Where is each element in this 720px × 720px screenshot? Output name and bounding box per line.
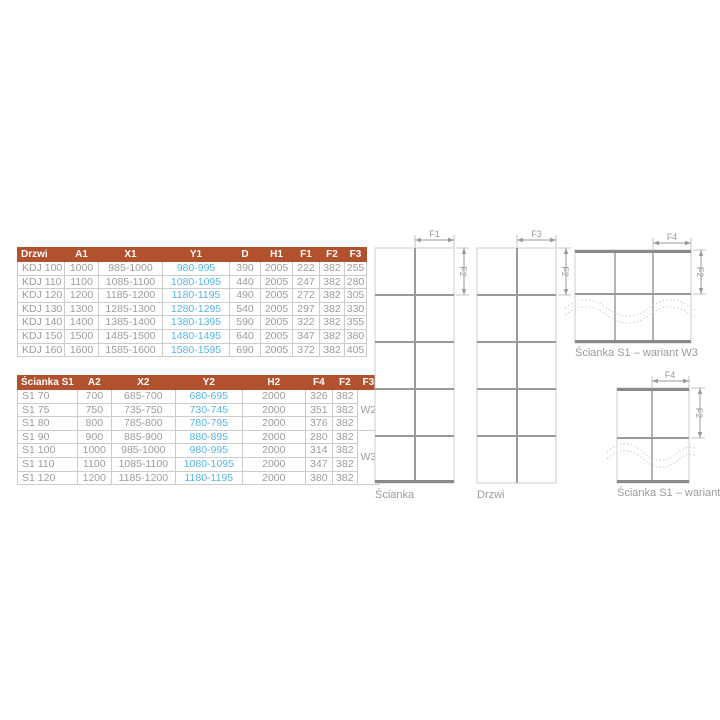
table-cell: 750 — [77, 403, 111, 417]
table-cell: 1485-1500 — [99, 329, 163, 343]
table-cell: 351 — [305, 403, 332, 417]
table-cell: 382 — [320, 329, 345, 343]
table-cell: S1 70 — [18, 390, 78, 404]
table-cell: KDJ 120 — [18, 289, 65, 303]
w2-variant-diagram: F4 F2 — [610, 368, 720, 490]
col-header-f3: F3 — [345, 248, 367, 262]
table-cell: 2005 — [261, 289, 293, 303]
table-cell: 1085-1100 — [111, 457, 175, 471]
table-cell: 2005 — [261, 275, 293, 289]
dim-label-f2: F2 — [458, 266, 468, 277]
table-cell: 322 — [293, 316, 320, 330]
scianka-table-body: S1 70700685-700680-6952000326382W2S1 757… — [18, 390, 380, 485]
drzwi-header-row: DrzwiA1X1Y1DH1F1F2F3 — [18, 248, 367, 262]
table-cell: 382 — [332, 457, 357, 471]
col-header-y2: Y2 — [175, 376, 242, 390]
table-cell: 382 — [320, 302, 345, 316]
table-row: KDJ 15015001485-15001480-149564020053473… — [18, 329, 367, 343]
table-cell: 1385-1400 — [99, 316, 163, 330]
col-header-a2: A2 — [77, 376, 111, 390]
table-cell: 985-1000 — [99, 262, 163, 276]
table-cell: KDJ 150 — [18, 329, 65, 343]
table-cell: 2000 — [242, 430, 305, 444]
table-row: KDJ 13013001285-13001280-129554020052973… — [18, 302, 367, 316]
table-cell: 590 — [230, 316, 261, 330]
table-row: KDJ 11011001085-11001080-109544020052473… — [18, 275, 367, 289]
table-cell: 297 — [293, 302, 320, 316]
drzwi-table: DrzwiA1X1Y1DH1F1F2F3 KDJ 1001000985-1000… — [17, 247, 367, 357]
table-cell: 2000 — [242, 403, 305, 417]
col-header-x1: X1 — [99, 248, 163, 262]
table-cell: 2000 — [242, 471, 305, 485]
table-cell: 1380-1395 — [163, 316, 230, 330]
table-cell: 2000 — [242, 444, 305, 458]
table-cell: 490 — [230, 289, 261, 303]
dimension-top: F3 — [517, 229, 556, 248]
table-cell: 680-695 — [175, 390, 242, 404]
table-row: S1 75750735-750730-7452000351382 — [18, 403, 380, 417]
table-cell: 280 — [305, 430, 332, 444]
col-header-f4: F4 — [305, 376, 332, 390]
table-cell: 382 — [332, 430, 357, 444]
table-cell: 1180-1195 — [163, 289, 230, 303]
table-cell: 382 — [332, 390, 357, 404]
table-row: S1 1001000985-1000980-9952000314382 — [18, 444, 380, 458]
table-cell: 540 — [230, 302, 261, 316]
table-cell: 1585-1600 — [99, 343, 163, 357]
dimension-top: F1 — [415, 229, 454, 248]
table-cell: 440 — [230, 275, 261, 289]
dim-label-f1: F1 — [429, 229, 440, 239]
table-cell: 785-800 — [111, 417, 175, 431]
table-cell: 380 — [305, 471, 332, 485]
dim-label-f2: F2 — [694, 408, 704, 419]
table-cell: 985-1000 — [111, 444, 175, 458]
drzwi-diagram-caption: Drzwi — [477, 489, 505, 501]
table-cell: 382 — [320, 343, 345, 357]
table-cell: 405 — [345, 343, 367, 357]
w3-diagram-caption: Ścianka S1 – wariant W3 — [575, 347, 698, 359]
dimension-top: F4 — [652, 370, 689, 388]
table-cell: 1580-1595 — [163, 343, 230, 357]
table-cell: 382 — [332, 444, 357, 458]
table-cell: 390 — [230, 262, 261, 276]
table-row: KDJ 12012001185-12001180-119549020052723… — [18, 289, 367, 303]
table-cell: 272 — [293, 289, 320, 303]
table-cell: 355 — [345, 316, 367, 330]
table-cell: S1 120 — [18, 471, 78, 485]
dimension-side: F2 — [691, 388, 705, 438]
table-cell: 880-895 — [175, 430, 242, 444]
table-cell: KDJ 100 — [18, 262, 65, 276]
table-cell: 1285-1300 — [99, 302, 163, 316]
col-header-x2: X2 — [111, 376, 175, 390]
table-cell: KDJ 110 — [18, 275, 65, 289]
table-cell: 1200 — [65, 289, 99, 303]
table-row: S1 70700685-700680-6952000326382W2 — [18, 390, 380, 404]
col-header-a1: A1 — [65, 248, 99, 262]
table-cell: 1400 — [65, 316, 99, 330]
table-cell: 980-995 — [163, 262, 230, 276]
col-header-f2: F2 — [332, 376, 357, 390]
table-cell: 2005 — [261, 302, 293, 316]
table-cell: 800 — [77, 417, 111, 431]
table-row: KDJ 1001000985-1000980-99539020052223822… — [18, 262, 367, 276]
table-cell: KDJ 160 — [18, 343, 65, 357]
table-cell: 1080-1095 — [175, 457, 242, 471]
table-cell: 382 — [320, 316, 345, 330]
table-cell: 382 — [320, 262, 345, 276]
table-cell: 1100 — [65, 275, 99, 289]
table-cell: 2005 — [261, 262, 293, 276]
dim-label-f3: F3 — [531, 229, 542, 239]
table-cell: 2005 — [261, 316, 293, 330]
table-cell: 305 — [345, 289, 367, 303]
w2-diagram-caption: Ścianka S1 – wariant W2 — [617, 487, 720, 499]
table-cell: 1000 — [65, 262, 99, 276]
table-cell: 2000 — [242, 417, 305, 431]
dimension-side: F2 — [693, 250, 706, 294]
table-row: S1 11011001085-11001080-10952000347382 — [18, 457, 380, 471]
table-cell: 247 — [293, 275, 320, 289]
table-cell: 780-795 — [175, 417, 242, 431]
table-cell: 347 — [305, 457, 332, 471]
table-cell: 2000 — [242, 390, 305, 404]
table-cell: S1 90 — [18, 430, 78, 444]
table-row: KDJ 14014001385-14001380-139559020053223… — [18, 316, 367, 330]
w3-variant-diagram: F4 F2 — [568, 232, 714, 350]
col-header-h2: H2 — [242, 376, 305, 390]
table-cell: 330 — [345, 302, 367, 316]
col-header-d: D — [230, 248, 261, 262]
table-cell: 1480-1495 — [163, 329, 230, 343]
drzwi-panel-diagram: F3 F2 — [472, 229, 574, 487]
dim-label-f2: F2 — [695, 267, 705, 278]
table-cell: 376 — [305, 417, 332, 431]
table-cell: S1 75 — [18, 403, 78, 417]
col-header-drzwi: Drzwi — [18, 248, 65, 262]
dim-label-f4: F4 — [665, 370, 676, 380]
dimension-side: F2 — [456, 248, 469, 295]
table-cell: 700 — [77, 390, 111, 404]
table-cell: 980-995 — [175, 444, 242, 458]
table-row: S1 90900885-900880-8952000280382W3 — [18, 430, 380, 444]
table-cell: 2005 — [261, 329, 293, 343]
glass-panel-outline — [617, 388, 689, 483]
dimension-top: F4 — [653, 232, 691, 250]
table-cell: 1185-1200 — [111, 471, 175, 485]
drzwi-table-body: KDJ 1001000985-1000980-99539020052223822… — [18, 262, 367, 357]
table-cell: 1280-1295 — [163, 302, 230, 316]
table-cell: 255 — [345, 262, 367, 276]
table-cell: 1080-1095 — [163, 275, 230, 289]
table-cell: 1085-1100 — [99, 275, 163, 289]
table-cell: 382 — [332, 403, 357, 417]
table-cell: S1 80 — [18, 417, 78, 431]
table-cell: 2000 — [242, 457, 305, 471]
col-header-ścianka-s1: Ścianka S1 — [18, 376, 78, 390]
table-cell: 730-745 — [175, 403, 242, 417]
col-header-y1: Y1 — [163, 248, 230, 262]
table-cell: 382 — [332, 471, 357, 485]
table-cell: 380 — [345, 329, 367, 343]
col-header-f2: F2 — [320, 248, 345, 262]
table-cell: 314 — [305, 444, 332, 458]
table-cell: 2005 — [261, 343, 293, 357]
table-row: KDJ 16016001585-16001580-159569020053723… — [18, 343, 367, 357]
col-header-h1: H1 — [261, 248, 293, 262]
table-cell: 640 — [230, 329, 261, 343]
table-cell: 222 — [293, 262, 320, 276]
table-cell: 735-750 — [111, 403, 175, 417]
table-cell: KDJ 140 — [18, 316, 65, 330]
table-cell: 382 — [320, 289, 345, 303]
table-cell: 347 — [293, 329, 320, 343]
table-cell: 885-900 — [111, 430, 175, 444]
table-cell: KDJ 130 — [18, 302, 65, 316]
table-cell: 1200 — [77, 471, 111, 485]
table-cell: 900 — [77, 430, 111, 444]
table-cell: 1300 — [65, 302, 99, 316]
table-cell: 280 — [345, 275, 367, 289]
table-cell: S1 110 — [18, 457, 78, 471]
table-cell: 382 — [320, 275, 345, 289]
table-cell: 1000 — [77, 444, 111, 458]
table-cell: 1600 — [65, 343, 99, 357]
col-header-f1: F1 — [293, 248, 320, 262]
scianka-table: Ścianka S1A2X2Y2H2F4F2F3 S1 70700685-700… — [17, 375, 380, 485]
table-cell: 326 — [305, 390, 332, 404]
scianka-panel-diagram: F1 F2 — [370, 229, 472, 487]
table-cell: 685-700 — [111, 390, 175, 404]
scianka-diagram-caption: Ścianka — [375, 489, 414, 501]
scianka-header-row: Ścianka S1A2X2Y2H2F4F2F3 — [18, 376, 380, 390]
table-row: S1 80800785-800780-7952000376382 — [18, 417, 380, 431]
dim-label-f4: F4 — [667, 232, 678, 242]
table-cell: 382 — [332, 417, 357, 431]
table-cell: 1185-1200 — [99, 289, 163, 303]
table-cell: 1500 — [65, 329, 99, 343]
table-cell: 1180-1195 — [175, 471, 242, 485]
glass-panel-outline — [575, 250, 691, 343]
table-row: S1 12012001185-12001180-11952000380382 — [18, 471, 380, 485]
table-cell: S1 100 — [18, 444, 78, 458]
table-cell: 372 — [293, 343, 320, 357]
table-cell: 690 — [230, 343, 261, 357]
table-cell: 1100 — [77, 457, 111, 471]
